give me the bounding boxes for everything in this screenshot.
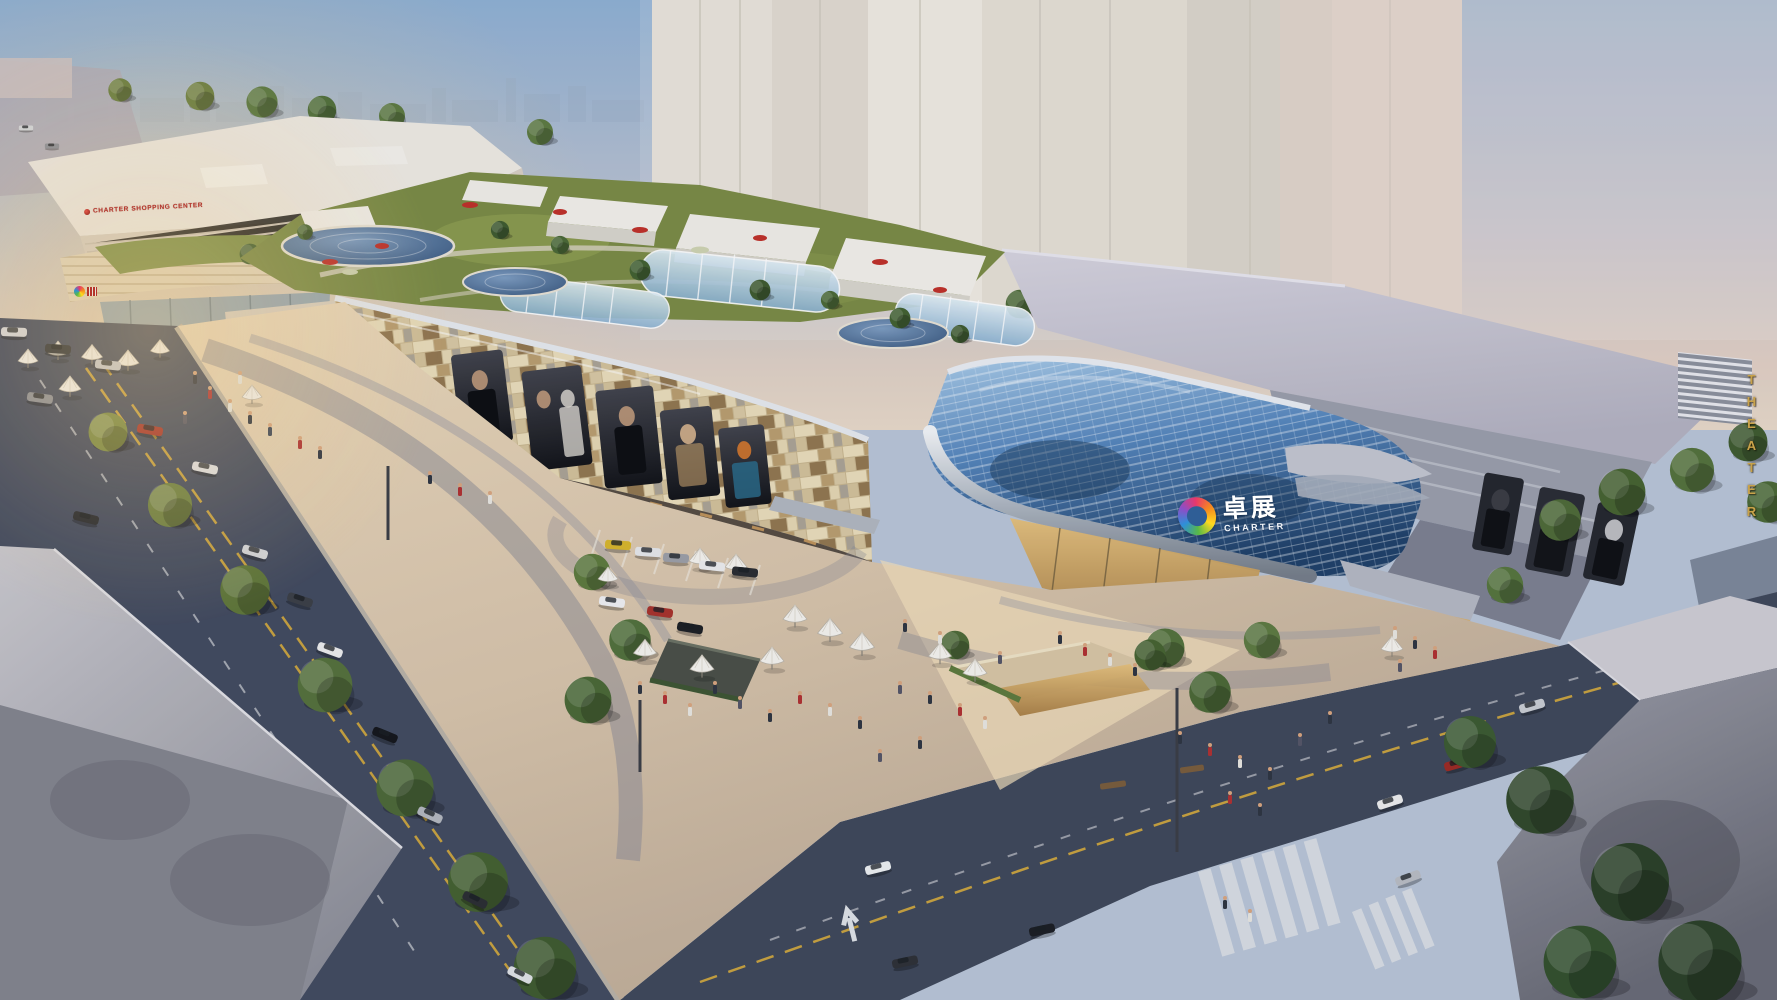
light-overlays	[0, 0, 1777, 1000]
scene-canvas	[0, 0, 1777, 1000]
architectural-rendering: CHARTER SHOPPING CENTER 卓展 CHARTER THEAT…	[0, 0, 1777, 1000]
